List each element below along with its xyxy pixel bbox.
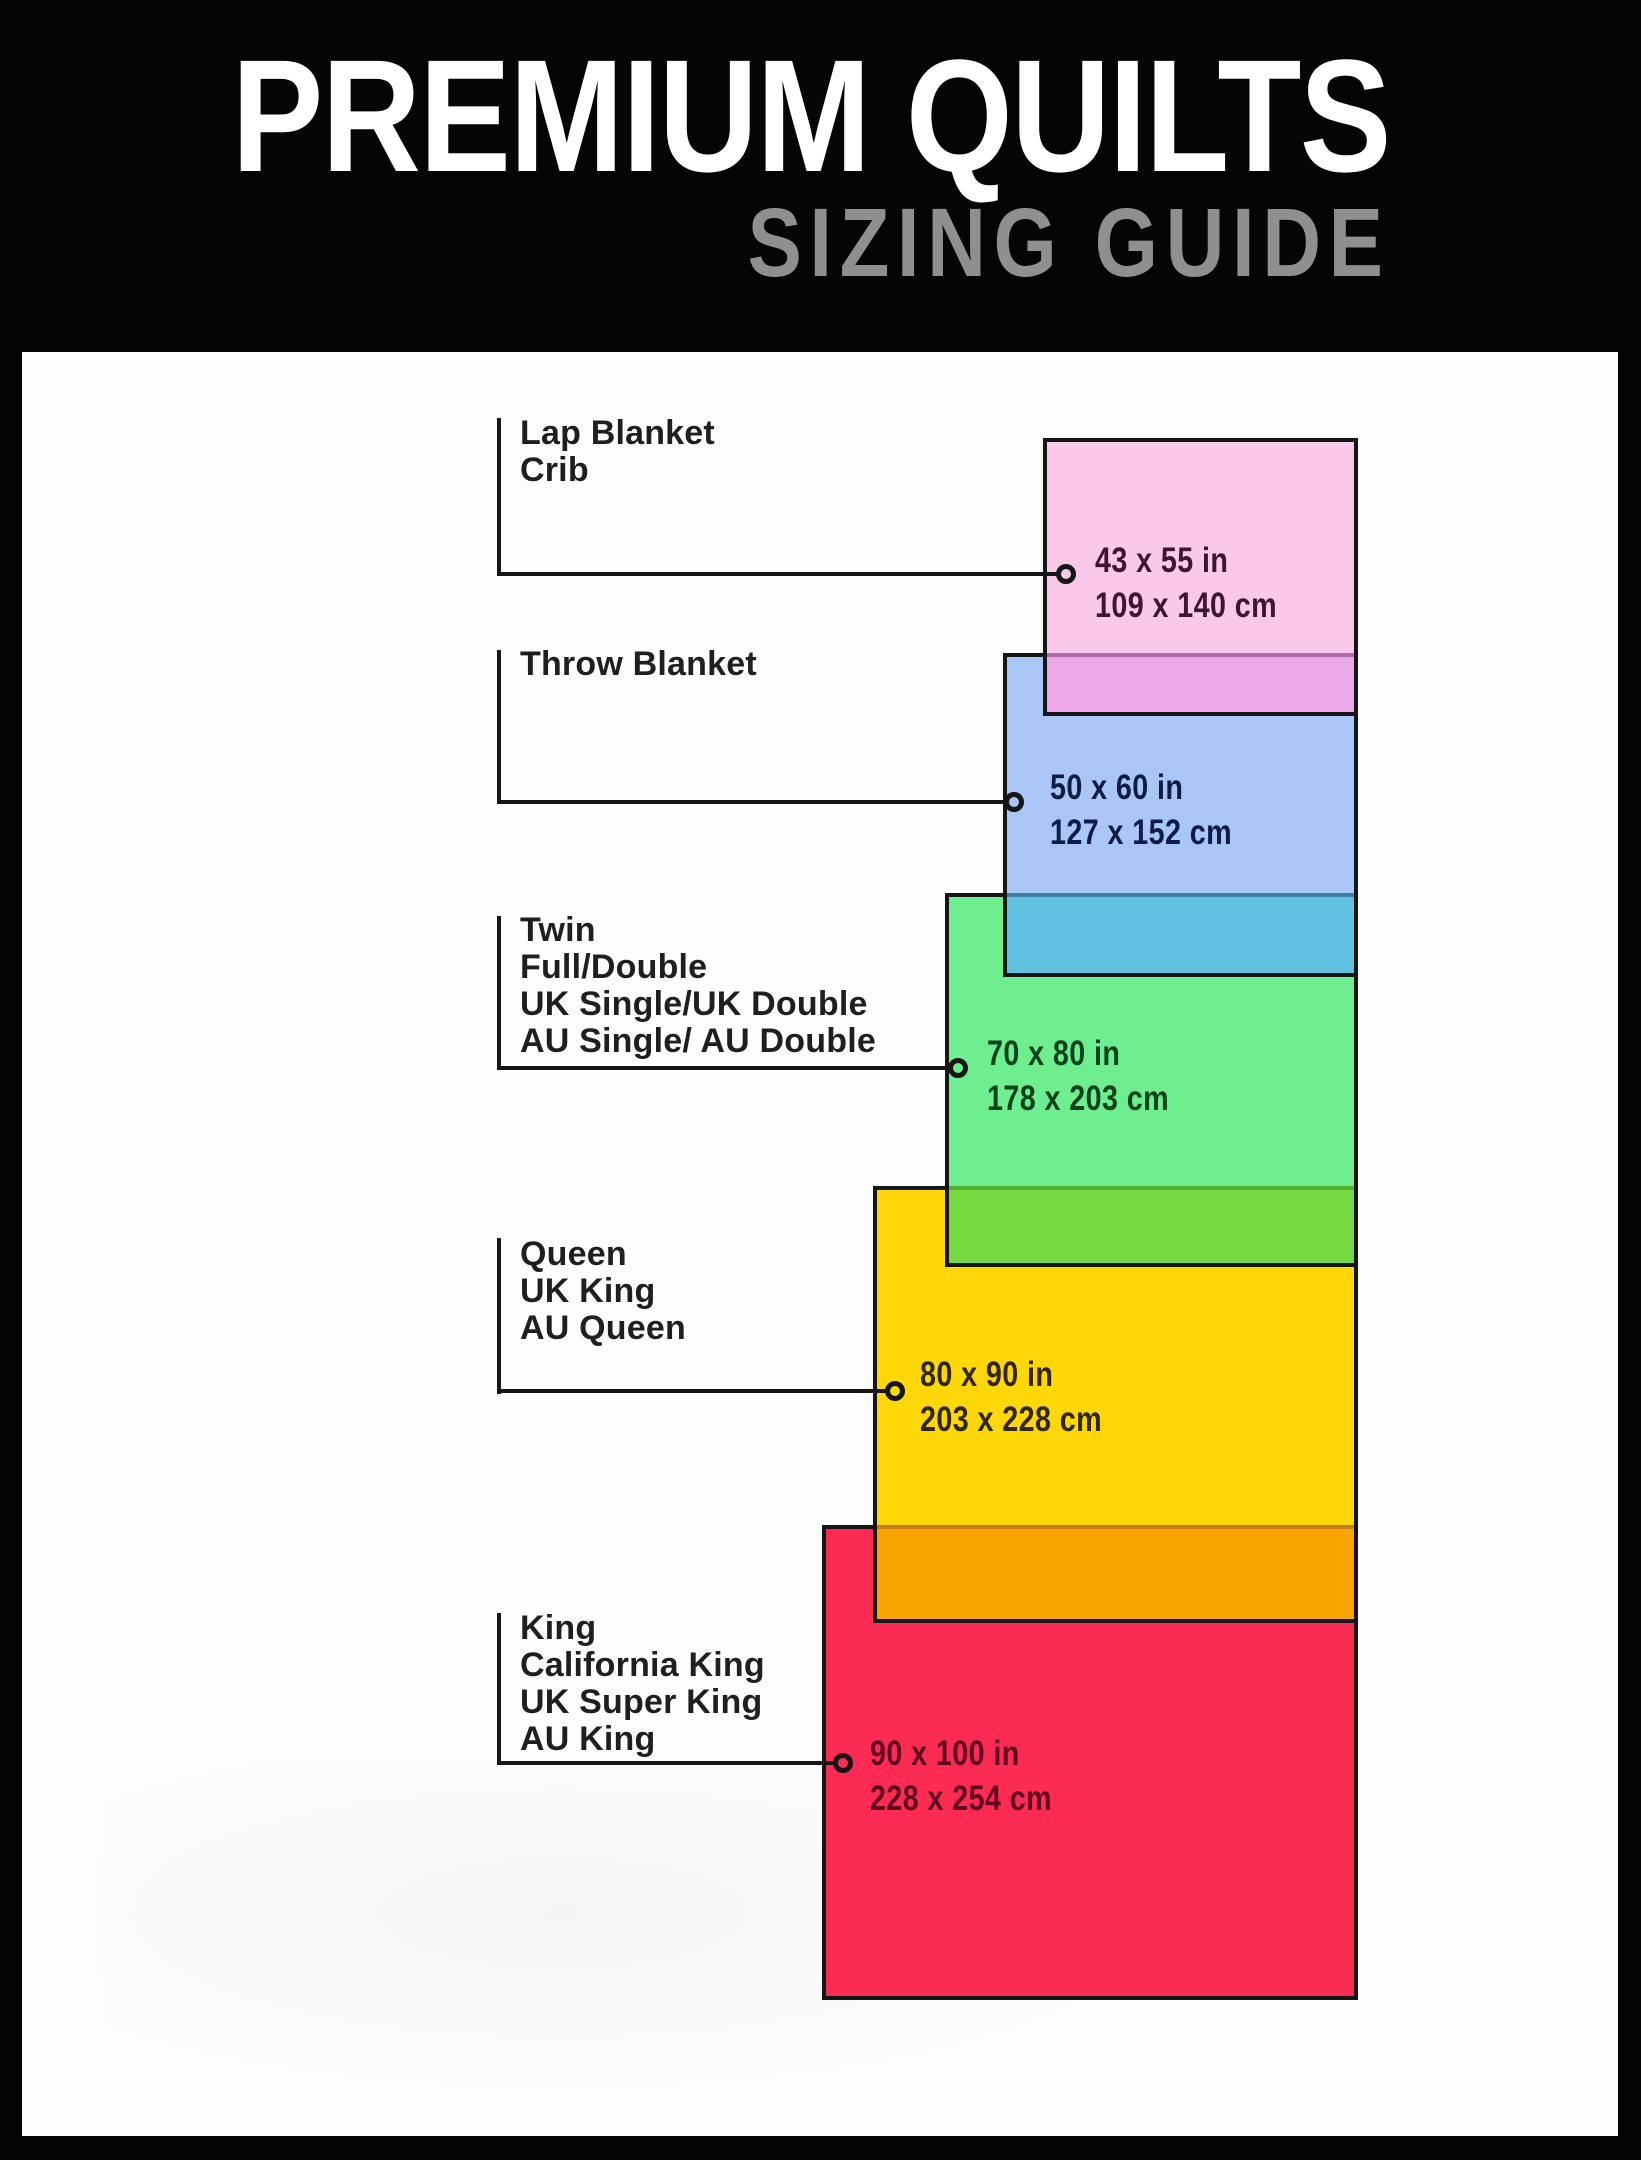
label-line: Lap Blanket [520, 415, 715, 452]
label-throw: Throw Blanket [520, 646, 757, 683]
dims-throw: 50 x 60 in 127 x 152 cm [1050, 765, 1232, 855]
label-line: UK King [520, 1273, 686, 1310]
label-line: AU King [520, 1721, 765, 1758]
dims-inches: 43 x 55 in [1095, 538, 1277, 583]
label-line: King [520, 1610, 765, 1647]
overlap-twin-over-queen [949, 1186, 1354, 1263]
label-line: Queen [520, 1236, 686, 1273]
label-line: UK Super King [520, 1684, 765, 1721]
connector-hline-queen [497, 1389, 886, 1393]
dims-twin: 70 x 80 in 178 x 203 cm [987, 1031, 1169, 1121]
dims-cm: 127 x 152 cm [1050, 810, 1232, 855]
dims-cm: 178 x 203 cm [987, 1076, 1169, 1121]
dims-inches: 70 x 80 in [987, 1031, 1169, 1076]
dims-cm: 109 x 140 cm [1095, 583, 1277, 628]
label-line: Full/Double [520, 949, 876, 986]
dims-queen: 80 x 90 in 203 x 228 cm [920, 1352, 1102, 1442]
page-subtitle: SIZING GUIDE [747, 194, 1390, 291]
label-line: California King [520, 1647, 765, 1684]
header: PREMIUM QUILTS SIZING GUIDE [0, 0, 1641, 352]
connector-vline-queen [497, 1238, 501, 1394]
dims-inches: 80 x 90 in [920, 1352, 1102, 1397]
infographic-page: PREMIUM QUILTS SIZING GUIDE Lap Blanket … [0, 0, 1641, 2160]
dims-king: 90 x 100 in 228 x 254 cm [870, 1731, 1052, 1821]
connector-hline-throw [497, 800, 1005, 804]
label-twin: Twin Full/Double UK Single/UK Double AU … [520, 912, 876, 1060]
dims-lap-crib: 43 x 55 in 109 x 140 cm [1095, 538, 1277, 628]
label-line: Crib [520, 452, 715, 489]
connector-hline-king [497, 1761, 834, 1765]
label-line: Throw Blanket [520, 646, 757, 683]
label-line: AU Single/ AU Double [520, 1023, 876, 1060]
connector-dot-throw [1004, 792, 1024, 812]
label-line: Twin [520, 912, 876, 949]
overlap-lap-over-throw [1047, 653, 1354, 712]
connector-vline-lap [497, 418, 501, 576]
connector-dot-twin [948, 1058, 968, 1078]
connector-hline-twin [497, 1066, 949, 1070]
overlap-queen-over-king [877, 1525, 1354, 1619]
dims-cm: 228 x 254 cm [870, 1776, 1052, 1821]
connector-dot-queen [885, 1381, 905, 1401]
connector-hline-lap [497, 572, 1057, 576]
dims-inches: 50 x 60 in [1050, 765, 1232, 810]
connector-vline-king [497, 1613, 501, 1765]
connector-dot-lap [1056, 564, 1076, 584]
label-line: AU Queen [520, 1310, 686, 1347]
connector-vline-twin [497, 916, 501, 1070]
dims-cm: 203 x 228 cm [920, 1397, 1102, 1442]
connector-vline-throw [497, 650, 501, 804]
overlap-throw-over-twin [1007, 893, 1354, 973]
connector-dot-king [833, 1753, 853, 1773]
label-king: King California King UK Super King AU Ki… [520, 1610, 765, 1758]
label-lap-crib: Lap Blanket Crib [520, 415, 715, 489]
label-queen: Queen UK King AU Queen [520, 1236, 686, 1347]
dims-inches: 90 x 100 in [870, 1731, 1052, 1776]
label-line: UK Single/UK Double [520, 986, 876, 1023]
page-title: PREMIUM QUILTS [232, 36, 1390, 196]
